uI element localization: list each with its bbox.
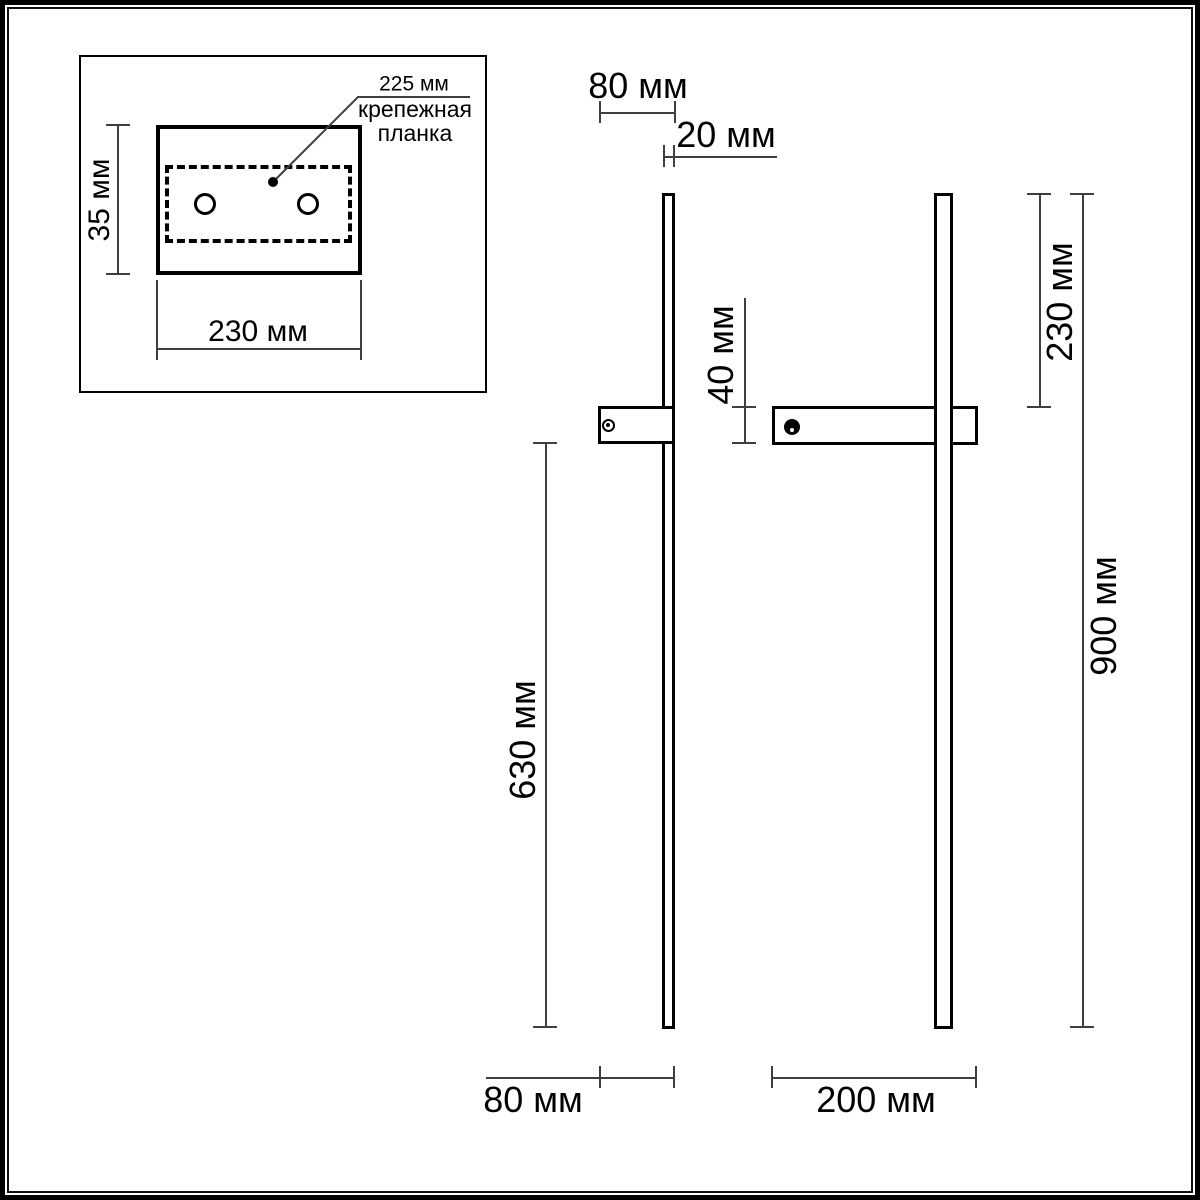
- mounting-hole-right: [297, 193, 319, 215]
- dim-tick: [106, 124, 130, 126]
- label-plate-width: 230 мм: [208, 317, 308, 347]
- front-lamp-bar: [934, 193, 953, 1029]
- dim-tick: [533, 1026, 557, 1028]
- dim-tick: [599, 1066, 601, 1088]
- dim-tick: [673, 145, 675, 167]
- side-lamp-bar: [662, 193, 675, 1029]
- leader-dot: [268, 177, 278, 187]
- label-hole-spacing: 225 мм: [379, 74, 449, 95]
- dim-tick: [106, 273, 130, 275]
- label-top-offset: 230 мм: [1042, 242, 1078, 362]
- dim-line-thickness: [664, 156, 777, 158]
- dim-line-bracket-height: [744, 298, 746, 444]
- technical-drawing: 225 мм крепежная планка 35 мм 230 мм 80 …: [0, 0, 1200, 1200]
- dim-tick: [663, 145, 665, 167]
- label-plate-name-line1: крепежная: [345, 97, 485, 121]
- label-total-height: 900 мм: [1086, 556, 1122, 676]
- dim-tick: [975, 1066, 977, 1088]
- dim-tick: [732, 406, 756, 408]
- label-plate-name: крепежная планка: [345, 97, 485, 145]
- label-plate-height: 35 мм: [85, 159, 115, 242]
- dim-tick: [732, 442, 756, 444]
- label-bracket-height: 40 мм: [703, 305, 739, 405]
- dim-tick: [1070, 193, 1094, 195]
- front-screw-slot: [790, 428, 794, 432]
- label-lower-length: 630 мм: [505, 680, 541, 800]
- label-thickness: 20 мм: [676, 117, 776, 153]
- dim-tick: [673, 1066, 675, 1088]
- dim-line-lower-length: [545, 443, 547, 1028]
- dim-tick: [1027, 406, 1051, 408]
- label-depth-top: 80 мм: [588, 68, 688, 104]
- label-plate-name-line2: планка: [345, 121, 485, 145]
- label-bracket-width: 200 мм: [816, 1082, 936, 1118]
- mounting-hole-left: [194, 193, 216, 215]
- side-screw-center-dot: [606, 423, 610, 427]
- dim-tick: [1027, 193, 1051, 195]
- dim-tick: [1070, 1026, 1094, 1028]
- dim-tick: [771, 1066, 773, 1088]
- dim-tick: [533, 442, 557, 444]
- dim-line-plate-height: [117, 125, 119, 275]
- dim-line-plate-width: [156, 348, 362, 350]
- dim-line-depth-top: [600, 112, 675, 114]
- front-screw-icon: [784, 419, 800, 435]
- label-depth-bottom: 80 мм: [483, 1082, 583, 1118]
